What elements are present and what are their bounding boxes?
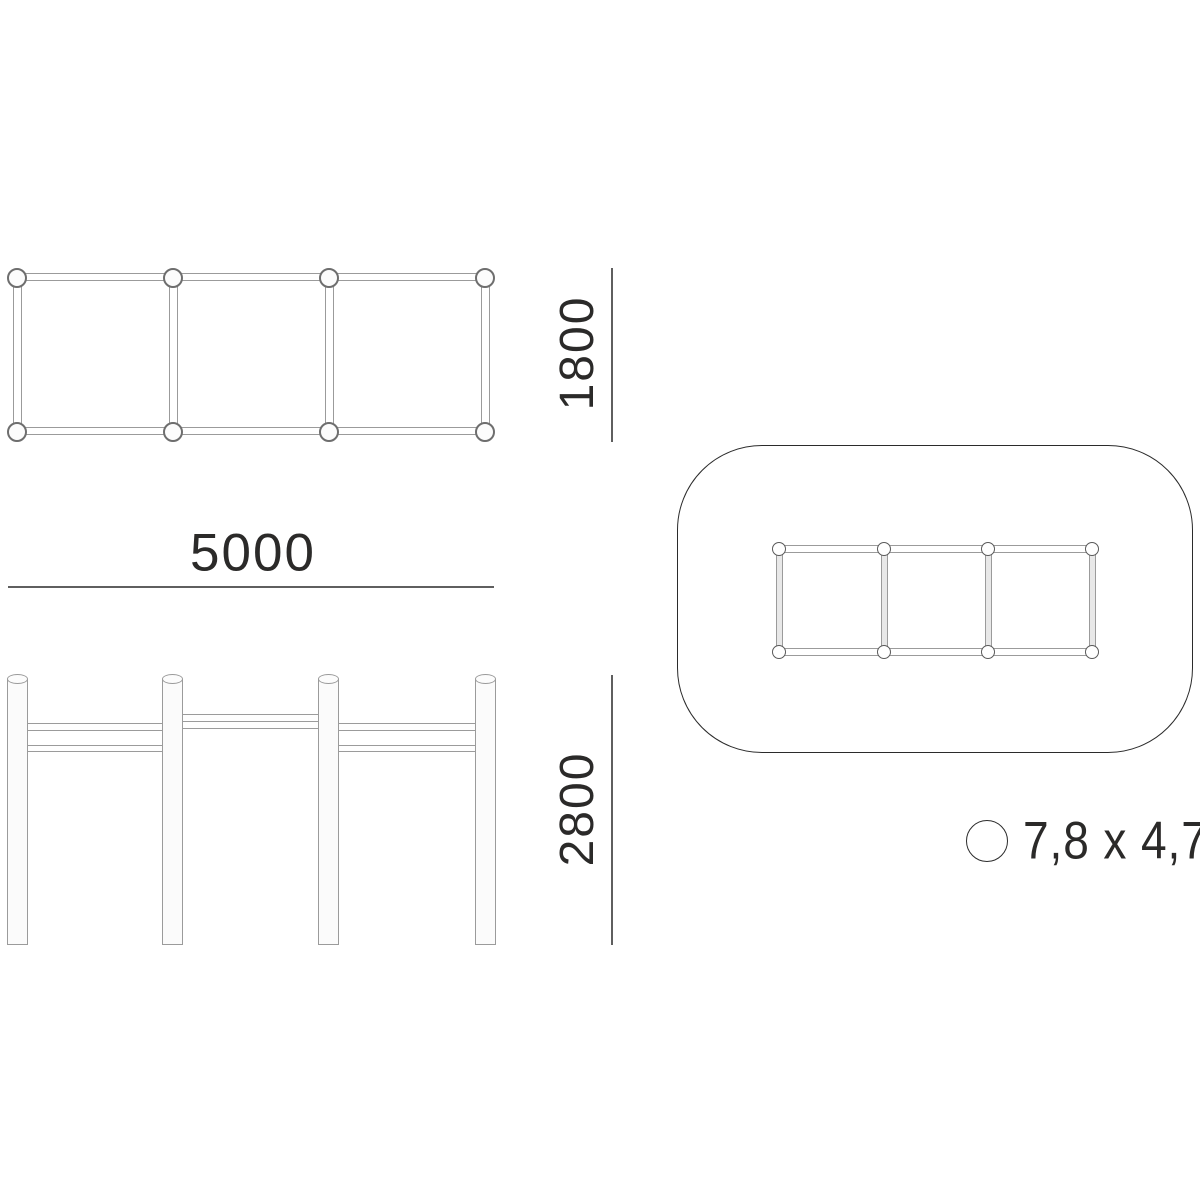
elevation-post [318,679,339,945]
safety-post-marker [981,645,995,659]
dimension-line-5000 [8,586,494,588]
safety-post-marker [772,542,786,556]
rail-left-upper [27,723,163,731]
rail-left-lower [27,745,163,752]
plan-horizontal-rail [17,427,485,435]
post-marker [319,422,339,442]
rail-right-upper [338,723,476,731]
drawing-canvas: 1800 5000 2800 [0,0,1200,1200]
safety-post-marker [877,645,891,659]
post-cap [7,674,28,684]
safety-post-marker [877,542,891,556]
safety-post-marker [1085,645,1099,659]
safety-plan-vertical-rail [776,549,783,652]
post-cap [475,674,496,684]
post-marker [475,268,495,288]
dimension-line-1800 [611,268,613,442]
safety-plan-horizontal-rail [779,545,1092,553]
safety-post-marker [1085,542,1099,556]
rail-middle-lower [182,721,319,729]
post-marker [475,422,495,442]
safety-zone-outline [677,445,1193,753]
plan-vertical-rail [13,278,22,432]
dimension-line-2800 [611,675,613,945]
elevation-post [475,679,496,945]
elevation-post [162,679,183,945]
post-marker [319,268,339,288]
plan-vertical-rail [325,278,334,432]
plan-horizontal-rail [17,273,485,281]
safety-zone-size-label: 7,8 x 4,7 [1023,815,1200,868]
scale-circle-icon [966,820,1008,862]
post-cap [162,674,183,684]
safety-plan-vertical-rail [1089,549,1096,652]
post-marker [7,268,27,288]
post-marker [163,268,183,288]
post-marker [7,422,27,442]
safety-post-marker [772,645,786,659]
safety-plan-vertical-rail [881,549,888,652]
plan-vertical-rail [169,278,178,432]
rail-right-lower [338,745,476,752]
post-cap [318,674,339,684]
dimension-label-5000: 5000 [190,527,316,580]
elevation-post [7,679,28,945]
safety-plan-vertical-rail [985,549,992,652]
dimension-label-2800: 2800 [554,752,602,867]
safety-post-marker [981,542,995,556]
safety-plan-horizontal-rail [779,648,1092,656]
post-marker [163,422,183,442]
plan-vertical-rail [481,278,490,432]
dimension-label-1800: 1800 [554,296,602,411]
